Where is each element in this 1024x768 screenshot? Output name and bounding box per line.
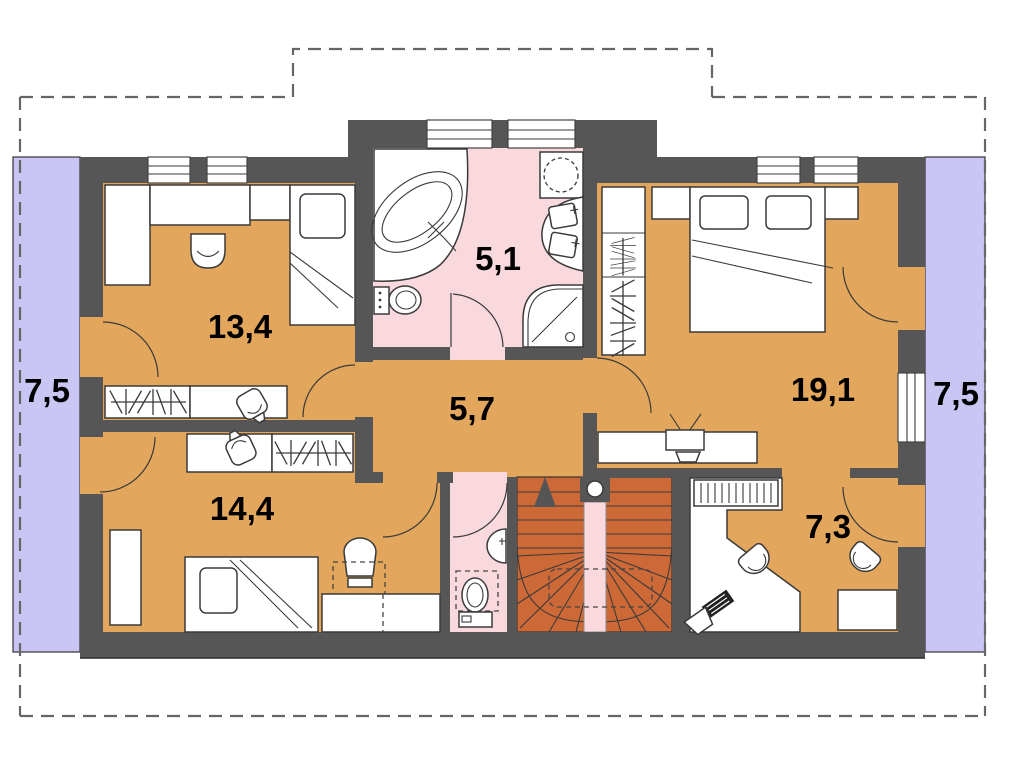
- area-label-balcony-left: 7,5: [24, 372, 70, 409]
- double-bed-icon: [690, 187, 833, 332]
- nightstand-icon: [823, 187, 858, 219]
- window-icon: [207, 157, 247, 183]
- area-label-room-14-4: 14,4: [210, 490, 275, 527]
- area-label-study: 7,3: [805, 508, 851, 545]
- wardrobe-hangers-icon: [602, 187, 645, 357]
- washing-machine-icon: [540, 152, 583, 198]
- window-icon: [898, 373, 925, 442]
- area-label-balcony-right: 7,5: [933, 375, 979, 412]
- window-icon: [427, 120, 492, 148]
- single-bed-icon: [290, 185, 355, 325]
- desk-icon: [838, 590, 897, 630]
- window-icon: [508, 120, 575, 148]
- counter-icon: [322, 594, 440, 632]
- nightstand-icon: [652, 187, 690, 219]
- area-label-bedroom: 19,1: [791, 371, 855, 408]
- armchair-icon: [191, 234, 225, 268]
- area-label-hall: 5,7: [449, 390, 495, 427]
- radiator-icon: [694, 480, 778, 506]
- corner-shower-icon: [523, 285, 583, 347]
- floor-plan-page: 7,5 13,4 5,1 5,7 19,1 7,5 14,4 7,3: [0, 0, 1024, 768]
- area-label-room-13-4: 13,4: [208, 308, 273, 345]
- floor-plan-canvas: 7,5 13,4 5,1 5,7 19,1 7,5 14,4 7,3: [0, 0, 1024, 768]
- cabinet-icon: [110, 530, 141, 625]
- window-icon: [757, 157, 800, 183]
- wardrobe-hangers-icon: [272, 434, 353, 472]
- cabinet-icon: [105, 185, 150, 285]
- wardrobe-icon: [150, 185, 250, 225]
- window-icon: [148, 157, 190, 183]
- newel-post-icon: [587, 481, 603, 497]
- dormer-outline-dashed: [293, 49, 712, 97]
- toilet-icon: [374, 286, 421, 314]
- single-bed-icon: [185, 557, 318, 632]
- window-icon: [814, 157, 858, 183]
- wardrobe-hangers-icon: [105, 386, 190, 418]
- stair-well-strip: [584, 502, 606, 632]
- nightstand-icon: [250, 185, 290, 220]
- area-label-bathroom: 5,1: [475, 240, 521, 277]
